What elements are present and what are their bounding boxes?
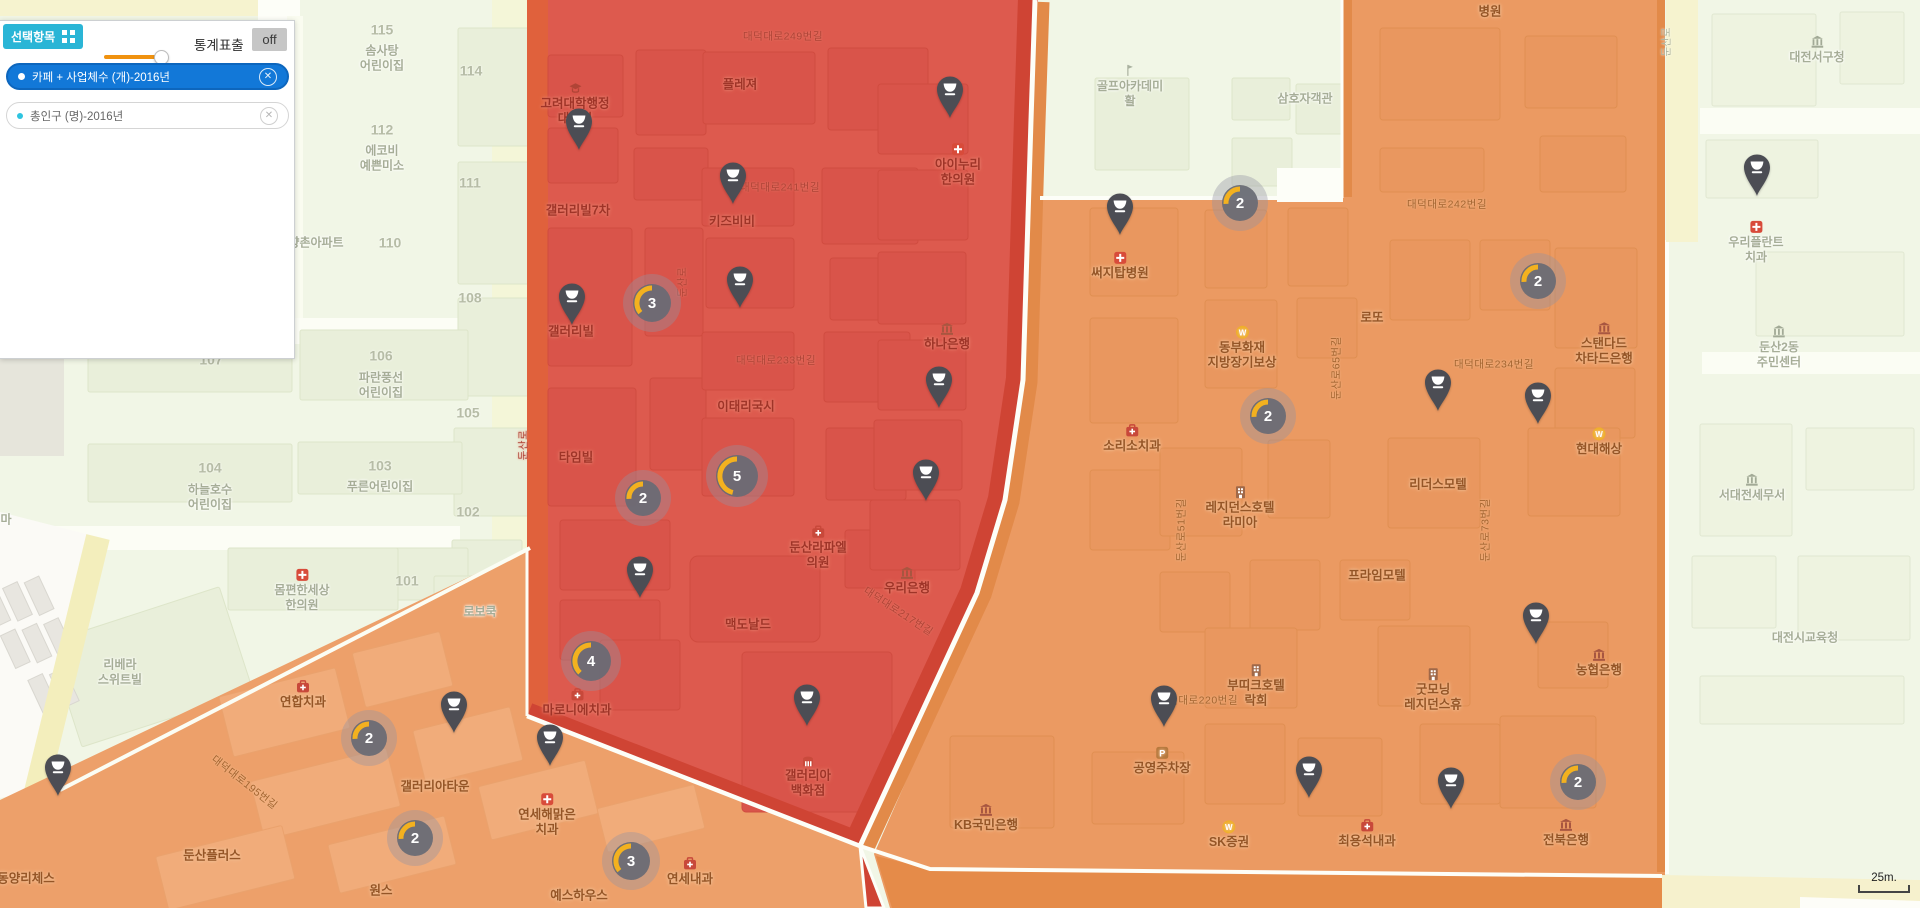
cluster-count: 2 [1550,754,1606,810]
opacity-slider[interactable] [104,54,162,60]
cafe-pin[interactable] [439,690,469,734]
cafe-pin[interactable] [1294,755,1324,799]
cafe-cluster-marker[interactable]: 2 [615,470,671,526]
cafe-cluster-marker[interactable]: 2 [1550,754,1606,810]
layer-item-population[interactable]: 총인구 (명)-2016년 ✕ [6,102,289,129]
bullet-icon [17,113,23,119]
cafe-pin[interactable] [1105,192,1135,236]
cafe-pin[interactable] [625,555,655,599]
close-icon[interactable]: ✕ [260,107,278,125]
cafe-cluster-marker[interactable]: 2 [1240,388,1296,444]
cluster-count: 2 [341,710,397,766]
cluster-count: 3 [623,274,681,332]
cafe-cluster-marker[interactable]: 5 [706,445,768,507]
cafe-pin[interactable] [557,282,587,326]
scale-line [1858,885,1910,893]
selected-items-label: 선택항목 [11,28,55,45]
scale-bar: 25m. [1858,872,1910,893]
cafe-pin[interactable] [1523,381,1553,425]
grid-icon [62,30,75,43]
cafe-pin[interactable] [535,723,565,767]
close-icon[interactable]: ✕ [259,68,277,86]
layer-item-cafe[interactable]: 카페 + 사업체수 (개)-2016년 ✕ [6,63,289,90]
cafe-cluster-marker[interactable]: 2 [1212,175,1268,231]
scale-label: 25m. [1858,872,1910,884]
selected-items-button[interactable]: 선택항목 [3,24,83,49]
cafe-pin[interactable] [725,265,755,309]
cafe-cluster-marker[interactable]: 2 [341,710,397,766]
cafe-pin[interactable] [1742,153,1772,197]
cafe-pin[interactable] [1423,368,1453,412]
cafe-cluster-marker[interactable]: 2 [1510,253,1566,309]
cluster-count: 4 [561,631,621,691]
bullet-icon [18,73,25,80]
cafe-pin[interactable] [1521,601,1551,645]
cafe-cluster-marker[interactable]: 3 [623,274,681,332]
cafe-pin[interactable] [935,75,965,119]
cafe-pin[interactable] [1436,766,1466,810]
stats-display-label: 통계표출 [194,34,244,54]
map-application: 115솜사탕 어린이집114112에코비 예쁜미소111향촌아파트1101081… [0,0,1920,908]
cafe-cluster-marker[interactable]: 3 [602,832,660,890]
layer-item-label: 총인구 (명)-2016년 [30,108,123,124]
stats-toggle-button[interactable]: off [252,28,287,51]
cafe-cluster-marker[interactable]: 4 [561,631,621,691]
cluster-count: 2 [1510,253,1566,309]
cafe-pin[interactable] [924,365,954,409]
cluster-count: 5 [706,445,768,507]
cluster-count: 2 [615,470,671,526]
cafe-pin[interactable] [43,753,73,797]
cafe-cluster-marker[interactable]: 2 [387,810,443,866]
cluster-count: 2 [387,810,443,866]
cluster-count: 2 [1212,175,1268,231]
cluster-count: 2 [1240,388,1296,444]
cafe-pin[interactable] [792,683,822,727]
layer-item-label: 카페 + 사업체수 (개)-2016년 [32,69,170,85]
cafe-pin[interactable] [1149,684,1179,728]
cluster-count: 3 [602,832,660,890]
selection-panel: 선택항목 통계표출 off 카페 + 사업체수 (개)-2016년 ✕ 총인구 … [0,20,295,359]
cafe-pin[interactable] [718,161,748,205]
cafe-pin[interactable] [564,107,594,151]
cafe-pin[interactable] [911,458,941,502]
